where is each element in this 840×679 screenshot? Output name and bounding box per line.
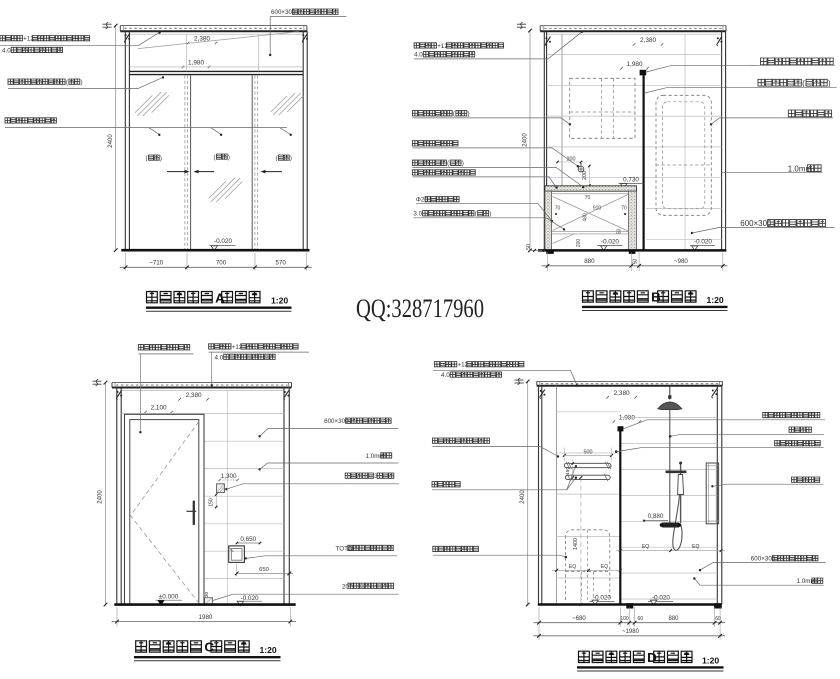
svg-text:~710: ~710 xyxy=(149,260,163,267)
svg-text:2400: 2400 xyxy=(520,490,526,504)
svg-text:1:20: 1:20 xyxy=(707,295,724,305)
svg-text:1,980: 1,980 xyxy=(188,60,204,67)
svg-text:70: 70 xyxy=(585,195,591,201)
svg-text:650: 650 xyxy=(259,567,269,573)
svg-text:0,730: 0,730 xyxy=(623,176,639,183)
svg-text:-0.020: -0.020 xyxy=(601,238,619,245)
svg-text:2400: 2400 xyxy=(98,490,104,504)
svg-text:): ) xyxy=(160,155,162,162)
svg-text:QQ:328717960: QQ:328717960 xyxy=(356,294,484,323)
svg-text:880: 880 xyxy=(584,258,595,265)
svg-text:4.0: 4.0 xyxy=(414,52,423,59)
svg-text:30: 30 xyxy=(204,592,210,598)
svg-text:1:20: 1:20 xyxy=(271,296,288,306)
svg-text:(: ( xyxy=(214,154,216,161)
svg-text:2,380: 2,380 xyxy=(186,392,202,399)
svg-text:200: 200 xyxy=(582,171,588,180)
svg-text:±0.000: ±0.000 xyxy=(159,593,179,600)
svg-text:2,380: 2,380 xyxy=(614,390,630,397)
svg-text:1400: 1400 xyxy=(573,538,579,550)
svg-text:): ) xyxy=(80,79,82,86)
svg-text:EQ: EQ xyxy=(692,544,699,550)
svg-text:880: 880 xyxy=(668,616,679,622)
svg-text:1:20: 1:20 xyxy=(702,655,719,665)
svg-text:1.0mm: 1.0mm xyxy=(797,578,816,585)
svg-text:0,650: 0,650 xyxy=(240,536,256,543)
svg-text:1,980: 1,980 xyxy=(627,61,643,68)
svg-text:700: 700 xyxy=(216,260,227,267)
svg-text:1.0mm: 1.0mm xyxy=(366,453,385,460)
svg-text:50: 50 xyxy=(633,259,639,265)
svg-text:60: 60 xyxy=(715,616,721,622)
svg-text:): ) xyxy=(489,211,491,218)
svg-text:2,100: 2,100 xyxy=(151,405,167,412)
svg-text:~680: ~680 xyxy=(572,616,586,622)
svg-text:150: 150 xyxy=(565,467,571,475)
svg-text:2,380: 2,380 xyxy=(194,36,210,43)
svg-text:-0.020: -0.020 xyxy=(694,238,712,245)
svg-text:60: 60 xyxy=(638,616,644,622)
svg-text:): ) xyxy=(290,155,292,162)
svg-text:50: 50 xyxy=(617,229,623,235)
svg-text:1,300: 1,300 xyxy=(221,473,237,480)
svg-text:(: ( xyxy=(146,155,148,162)
svg-text:50: 50 xyxy=(526,244,532,250)
svg-text:(: ( xyxy=(802,79,805,88)
svg-text:100: 100 xyxy=(620,616,629,622)
svg-text:910: 910 xyxy=(593,206,602,212)
svg-text:Φ20: Φ20 xyxy=(416,197,428,204)
svg-text:70: 70 xyxy=(555,206,561,212)
svg-text:3.0: 3.0 xyxy=(413,211,422,218)
svg-text:570: 570 xyxy=(276,260,287,267)
svg-text:EQ: EQ xyxy=(601,564,608,570)
svg-text:~980: ~980 xyxy=(674,258,688,265)
svg-text:): ) xyxy=(228,154,230,161)
svg-text:2400: 2400 xyxy=(108,134,114,148)
svg-text:): ) xyxy=(468,111,470,118)
svg-text:200: 200 xyxy=(576,239,582,248)
svg-text:~1980: ~1980 xyxy=(622,629,640,635)
svg-text:0,880: 0,880 xyxy=(648,513,664,520)
svg-text:1:20: 1:20 xyxy=(260,645,277,655)
svg-text:-0.020: -0.020 xyxy=(214,238,233,245)
svg-text:4.0: 4.0 xyxy=(2,47,11,54)
svg-text:500: 500 xyxy=(584,450,593,456)
svg-text:2400: 2400 xyxy=(522,133,528,147)
svg-text:EQ: EQ xyxy=(569,564,576,570)
svg-text:150: 150 xyxy=(208,498,214,507)
svg-text:EQ: EQ xyxy=(642,544,649,550)
svg-text:): ) xyxy=(462,160,464,167)
svg-text:1980: 1980 xyxy=(199,614,213,621)
svg-text:4.0: 4.0 xyxy=(441,372,450,379)
svg-text:2,380: 2,380 xyxy=(640,37,656,44)
svg-text:480: 480 xyxy=(583,213,589,222)
svg-text:): ) xyxy=(828,79,831,88)
svg-text:4.0: 4.0 xyxy=(215,354,224,361)
svg-text:(: ( xyxy=(276,155,278,162)
svg-text:70: 70 xyxy=(621,206,627,212)
